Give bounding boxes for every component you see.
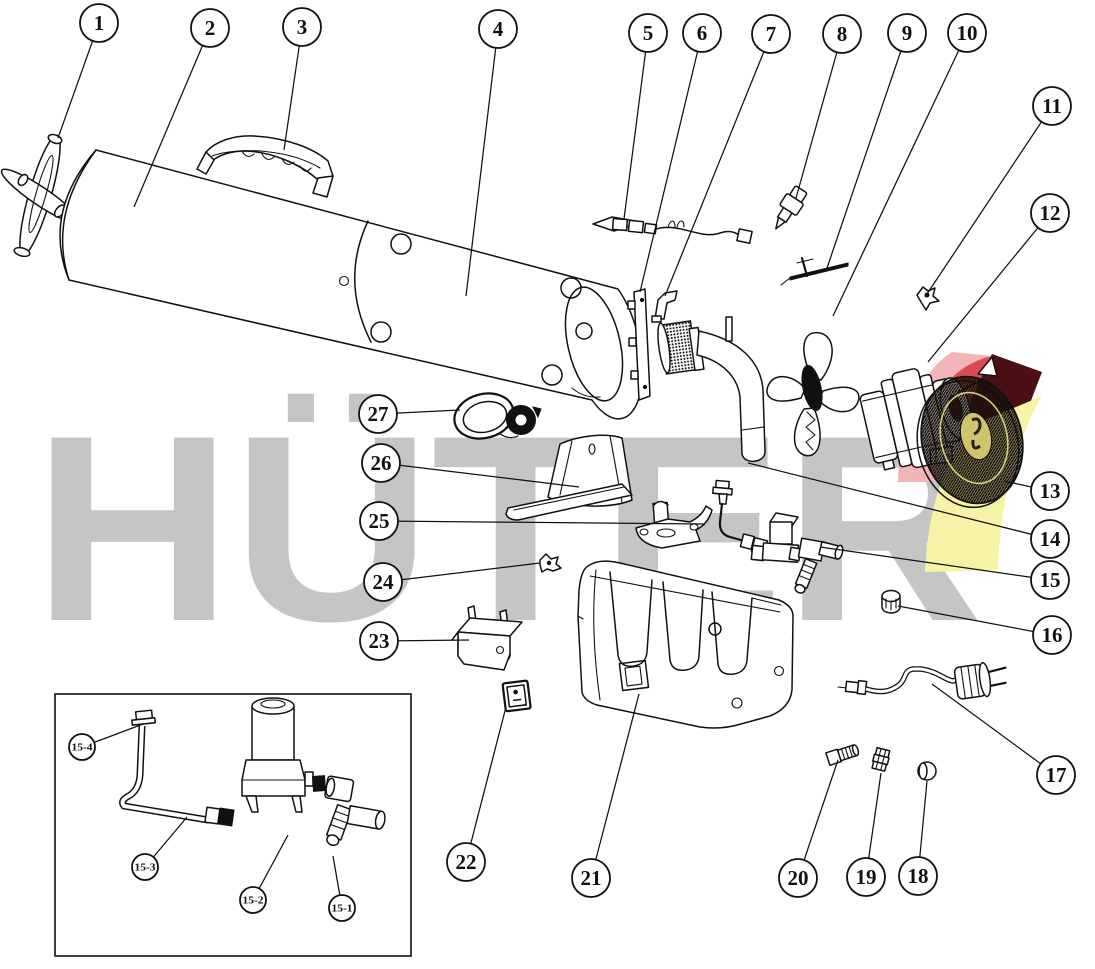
callout-label-11: 11 (1042, 94, 1062, 118)
inset-fitting-15-3 (205, 807, 234, 826)
callout-label-15-1: 15-1 (332, 904, 353, 915)
spark-plug (767, 184, 809, 234)
inlet-fitting (826, 743, 860, 765)
leader-line-11 (925, 106, 1052, 297)
callout-label-14: 14 (1040, 527, 1062, 551)
power-switch (503, 681, 531, 712)
callout-label-5: 5 (643, 21, 654, 45)
leader-line-10 (833, 33, 967, 316)
callout-label-8: 8 (837, 22, 848, 46)
cord-clip (871, 747, 891, 771)
callout-label-10: 10 (957, 21, 978, 45)
callout-label-17: 17 (1046, 763, 1067, 787)
cable-bushing (882, 591, 900, 614)
callout-label-15: 15 (1040, 568, 1061, 592)
callout-label-6: 6 (697, 21, 708, 45)
leader-line-12 (928, 213, 1050, 362)
thermocouple (593, 217, 752, 243)
leader-line-9 (827, 33, 907, 268)
callout-label-26: 26 (371, 451, 392, 475)
callout-label-9: 9 (902, 21, 913, 45)
injector-needle (781, 258, 848, 285)
callout-label-15-2: 15-2 (243, 896, 264, 907)
callout-label-13: 13 (1040, 479, 1061, 503)
callout-label-12: 12 (1040, 201, 1061, 225)
callout-label-15-4: 15-4 (72, 743, 94, 754)
callout-label-24: 24 (373, 570, 395, 594)
callout-label-21: 21 (581, 866, 602, 890)
callout-label-19: 19 (856, 865, 877, 889)
heater-body-shell (60, 150, 642, 419)
inset-valve-detail (55, 694, 411, 956)
callout-label-25: 25 (369, 509, 390, 533)
callout-label-7: 7 (766, 22, 777, 46)
callout-label-16: 16 (1042, 623, 1063, 647)
callout-label-1: 1 (94, 11, 105, 35)
motor-clip (917, 287, 939, 310)
leader-line-21 (591, 694, 639, 878)
callout-label-2: 2 (205, 16, 216, 40)
callout-label-23: 23 (369, 629, 390, 653)
leader-line-5 (624, 33, 648, 219)
callout-label-4: 4 (493, 17, 504, 41)
cord-cap (918, 762, 936, 780)
leader-line-6 (640, 33, 702, 292)
leader-line-22 (466, 707, 506, 862)
leader-line-8 (796, 34, 842, 198)
callout-label-27: 27 (368, 402, 389, 426)
exploded-parts-diagram: HÜTER (0, 0, 1095, 969)
callout-label-3: 3 (297, 15, 308, 39)
callout-label-22: 22 (456, 850, 477, 874)
callout-label-20: 20 (788, 866, 809, 890)
leader-line-7 (665, 34, 771, 296)
leader-line-17 (932, 684, 1056, 775)
callout-label-18: 18 (908, 864, 929, 888)
callout-label-15-3: 15-3 (135, 863, 156, 874)
